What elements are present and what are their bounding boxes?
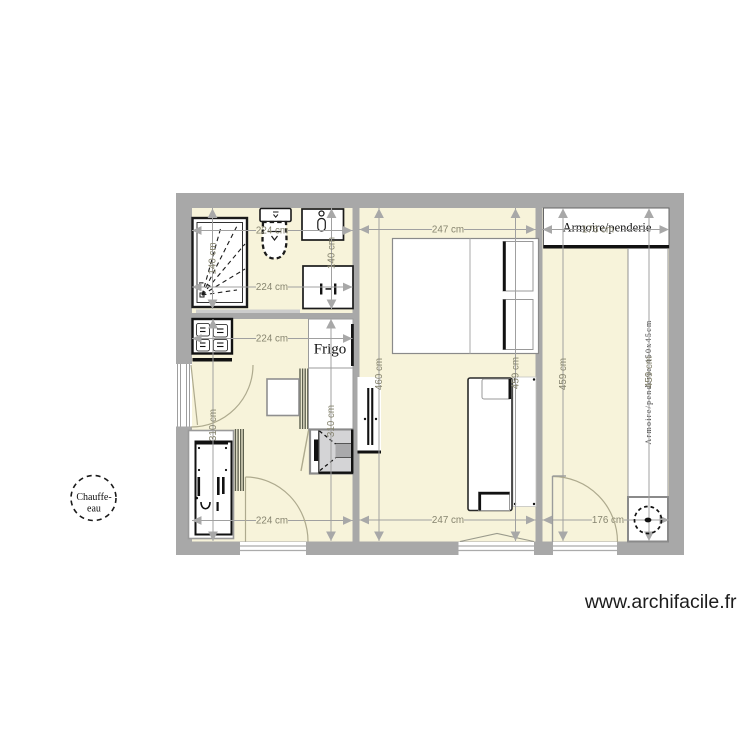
svg-text:459 cm: 459 cm [511,357,522,389]
svg-text:140 cm: 140 cm [208,242,219,274]
svg-text:247 cm: 247 cm [432,515,464,526]
svg-text:224 cm: 224 cm [256,334,288,345]
svg-text:Chauffe-: Chauffe- [76,492,111,503]
svg-text:224 cm: 224 cm [256,282,288,293]
svg-text:460 cm: 460 cm [374,358,385,390]
svg-text:176 cm: 176 cm [592,515,624,526]
svg-text:176 cm: 176 cm [582,225,614,236]
svg-text:140 cm: 140 cm [327,237,338,269]
svg-text:www.archifacile.fr: www.archifacile.fr [584,591,737,613]
svg-text:310 cm: 310 cm [326,405,337,437]
svg-text:310 cm: 310 cm [208,409,219,441]
svg-text:Frigo: Frigo [314,342,347,358]
svg-text:224 cm: 224 cm [256,516,288,527]
svg-text:459 cm: 459 cm [558,358,569,390]
svg-text:eau: eau [87,504,101,515]
svg-text:247 cm: 247 cm [432,225,464,236]
svg-text:459 cm: 459 cm [644,356,655,388]
svg-text:224 cm: 224 cm [256,226,288,237]
